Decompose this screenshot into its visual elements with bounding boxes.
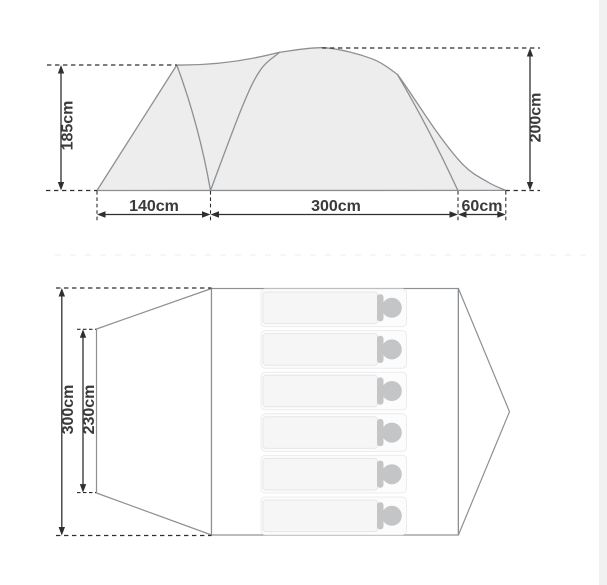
svg-text:185cm: 185cm <box>60 101 77 151</box>
svg-text:230cm: 230cm <box>81 385 98 435</box>
svg-text:300cm: 300cm <box>311 198 361 215</box>
svg-text:200cm: 200cm <box>528 93 545 143</box>
svg-text:60cm: 60cm <box>462 198 503 215</box>
svg-text:140cm: 140cm <box>129 198 179 215</box>
svg-text:300cm: 300cm <box>60 385 77 435</box>
